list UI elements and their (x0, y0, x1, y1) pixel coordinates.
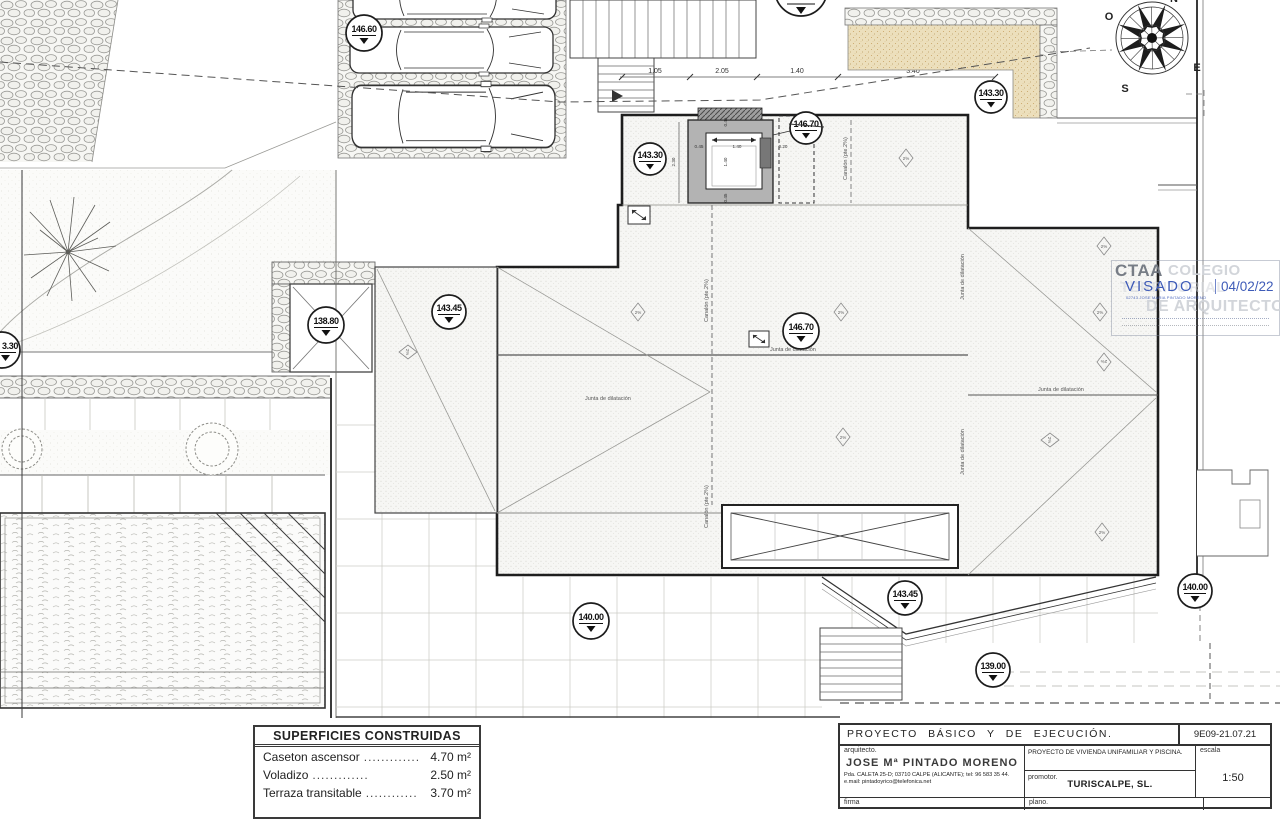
level-marker-terrace-left: 143.45 (432, 295, 466, 329)
level-value: 146.70 (788, 322, 814, 332)
level-marker-top-right: 143.30 (975, 81, 1007, 113)
car-bottom (352, 81, 555, 151)
areas-table-row: Caseton ascensor ............. 4.70 m² (255, 747, 479, 765)
junta-label: Junta de dilatación (1038, 387, 1084, 393)
dim-value: 2.05 (715, 68, 729, 75)
canalon-label: Canalón (pte.2%) (704, 279, 710, 322)
level-value: 143.45 (892, 589, 918, 599)
architect-label: arquitecto. (844, 747, 1020, 754)
skylight-strip (722, 505, 958, 568)
junta-label: Junta de dilatación (960, 254, 966, 300)
slope-arrow-icon: 2% (635, 310, 642, 315)
area-label: Terraza transitable (263, 785, 362, 801)
scale-value: 1:50 (1196, 772, 1270, 784)
area-label: Voladizo (263, 767, 308, 783)
level-value: 3.30 (2, 341, 18, 351)
areas-table-row: Terraza transitable ............ 3.70 m² (255, 783, 479, 801)
compass-e-label: E (1193, 62, 1200, 74)
compass-o-label: O (1105, 11, 1114, 23)
promoter-name: TURISCALPE, SL. (1025, 779, 1195, 790)
slope-arrow-icon: 2% (838, 310, 845, 315)
dim-value: 0.20 (779, 144, 788, 149)
dim-value: 1.40 (733, 144, 742, 149)
slope-arrow-icon: 2% (405, 349, 410, 356)
compass-rose (1116, 2, 1188, 74)
level-marker-roof-edge: 143.45 (888, 581, 922, 615)
visado-stamp: COLEGIO TERRITORIAL DE ARQUITECTOS CTAA … (1111, 260, 1280, 336)
project-title: PROYECTO DE VIVIENDA UNIFAMILIAR Y PISCI… (1025, 746, 1195, 771)
stamp-fine-print-line (1122, 318, 1269, 319)
stamp-fine-print-line (1122, 325, 1269, 326)
level-marker-terrace-bottom: 140.00 (573, 603, 609, 639)
architect-email: e.mail: pintadoyrico@telefonica.net (844, 779, 1020, 786)
dim-value: 0.45 (723, 193, 728, 202)
stamp-architect-ref: 02743 JOSE MARIA PINTADO MORENO (1126, 295, 1206, 300)
level-marker-right-edge: 140.00 (1178, 574, 1212, 608)
dim-value: 2.30 (671, 157, 676, 166)
area-value: 4.70 m² (430, 749, 471, 765)
dim-value: 1.40 (790, 68, 804, 75)
architect-cell: arquitecto. JOSE Mª PINTADO MORENO Pda. … (840, 746, 1025, 797)
stamp-visado-label: VISADO (1125, 278, 1194, 295)
slope-arrow-icon: 2% (1097, 310, 1104, 315)
slope-arrow-icon: 2% (1047, 437, 1052, 444)
floor-plan-svg: 1.05 2.05 1.40 3.40 (0, 0, 1280, 800)
area-dots: ............. (364, 749, 427, 765)
roof-hatch-icon (628, 206, 650, 224)
area-label: Caseton ascensor (263, 749, 360, 765)
level-value: 139.00 (980, 661, 1006, 671)
level-marker-roof-center: 146.70 (783, 313, 819, 349)
area-value: 2.50 m² (430, 767, 471, 783)
dim-value: 1.40 (723, 157, 728, 166)
dim-value: 0.45 (723, 117, 728, 126)
level-value: 138.80 (313, 316, 339, 326)
stairs-top (570, 0, 756, 112)
stairs-bottom (820, 628, 902, 700)
junta-label: Junta de dilatación (960, 429, 966, 475)
slope-arrow-icon: 2% (840, 435, 847, 440)
level-value: 146.60 (351, 24, 377, 34)
project-type: PROYECTO BÁSICO Y DE EJECUCIÓN. (840, 725, 1178, 744)
architect-address: Pda. CALETA 25-D; 03710 CALPE (ALICANTE)… (844, 772, 1020, 779)
areas-table-row: Voladizo ............. 2.50 m² (255, 765, 479, 783)
slope-arrow-icon: 2% (1099, 530, 1106, 535)
slope-arrow-icon: 2% (903, 156, 910, 161)
canalon-label: Canalón (pte.2%) (843, 137, 849, 180)
scale-label: escala (1200, 747, 1266, 754)
level-marker-elevator-left: 143.30 (634, 143, 666, 175)
stamp-watermark: DE ARQUITECTOS (1146, 298, 1280, 316)
area-value: 3.70 m² (430, 785, 471, 801)
level-marker-patio: 138.80 (308, 307, 344, 343)
level-value: 146.70 (793, 119, 819, 129)
project-cell: PROYECTO DE VIVIENDA UNIFAMILIAR Y PISCI… (1025, 746, 1196, 797)
stamp-date: 04/02/22 (1215, 279, 1274, 294)
drawing-code: 9E09-21.07.21 (1178, 725, 1270, 744)
tile-strips-left (0, 398, 330, 513)
junta-label: Junta de dilatación (585, 396, 631, 402)
level-value: 143.30 (637, 150, 663, 160)
compass-n-label: N (1170, 0, 1178, 5)
scale-cell: escala 1:50 (1196, 746, 1270, 797)
compass-s-label: S (1121, 83, 1128, 95)
roof-hatch-icon (749, 331, 769, 347)
areas-table: SUPERFICIES CONSTRUIDAS Caseton ascensor… (253, 725, 481, 819)
area-dots: ............ (366, 785, 427, 801)
level-marker-garden: 139.00 (976, 653, 1010, 687)
pool (0, 513, 325, 708)
dim-value: 0.45 (695, 144, 704, 149)
blueprint-page: { "levels": { "driveway": "146.60", "ele… (0, 0, 1280, 800)
level-marker-driveway: 146.60 (346, 15, 382, 51)
title-block: PROYECTO BÁSICO Y DE EJECUCIÓN. 9E09-21.… (838, 723, 1272, 809)
level-value: 143.30 (978, 88, 1004, 98)
level-value: 143.45 (436, 303, 462, 313)
canalon-label: Canalón (pte.2%) (704, 485, 710, 528)
stepped-structure (1197, 470, 1268, 556)
slope-arrow-icon: 2% (1101, 359, 1108, 364)
car-top (353, 0, 556, 22)
stamp-watermark: COLEGIO (1168, 262, 1241, 279)
level-value: 140.00 (578, 612, 604, 622)
architect-name: JOSE Mª PINTADO MORENO (844, 757, 1020, 769)
dim-value: 1.05 (648, 68, 662, 75)
area-dots: ............. (312, 767, 426, 783)
areas-table-header: SUPERFICIES CONSTRUIDAS (255, 727, 479, 747)
level-marker-top-cut (775, 0, 827, 16)
level-value: 140.00 (1182, 582, 1208, 592)
slope-arrow-icon: 2% (1101, 244, 1108, 249)
